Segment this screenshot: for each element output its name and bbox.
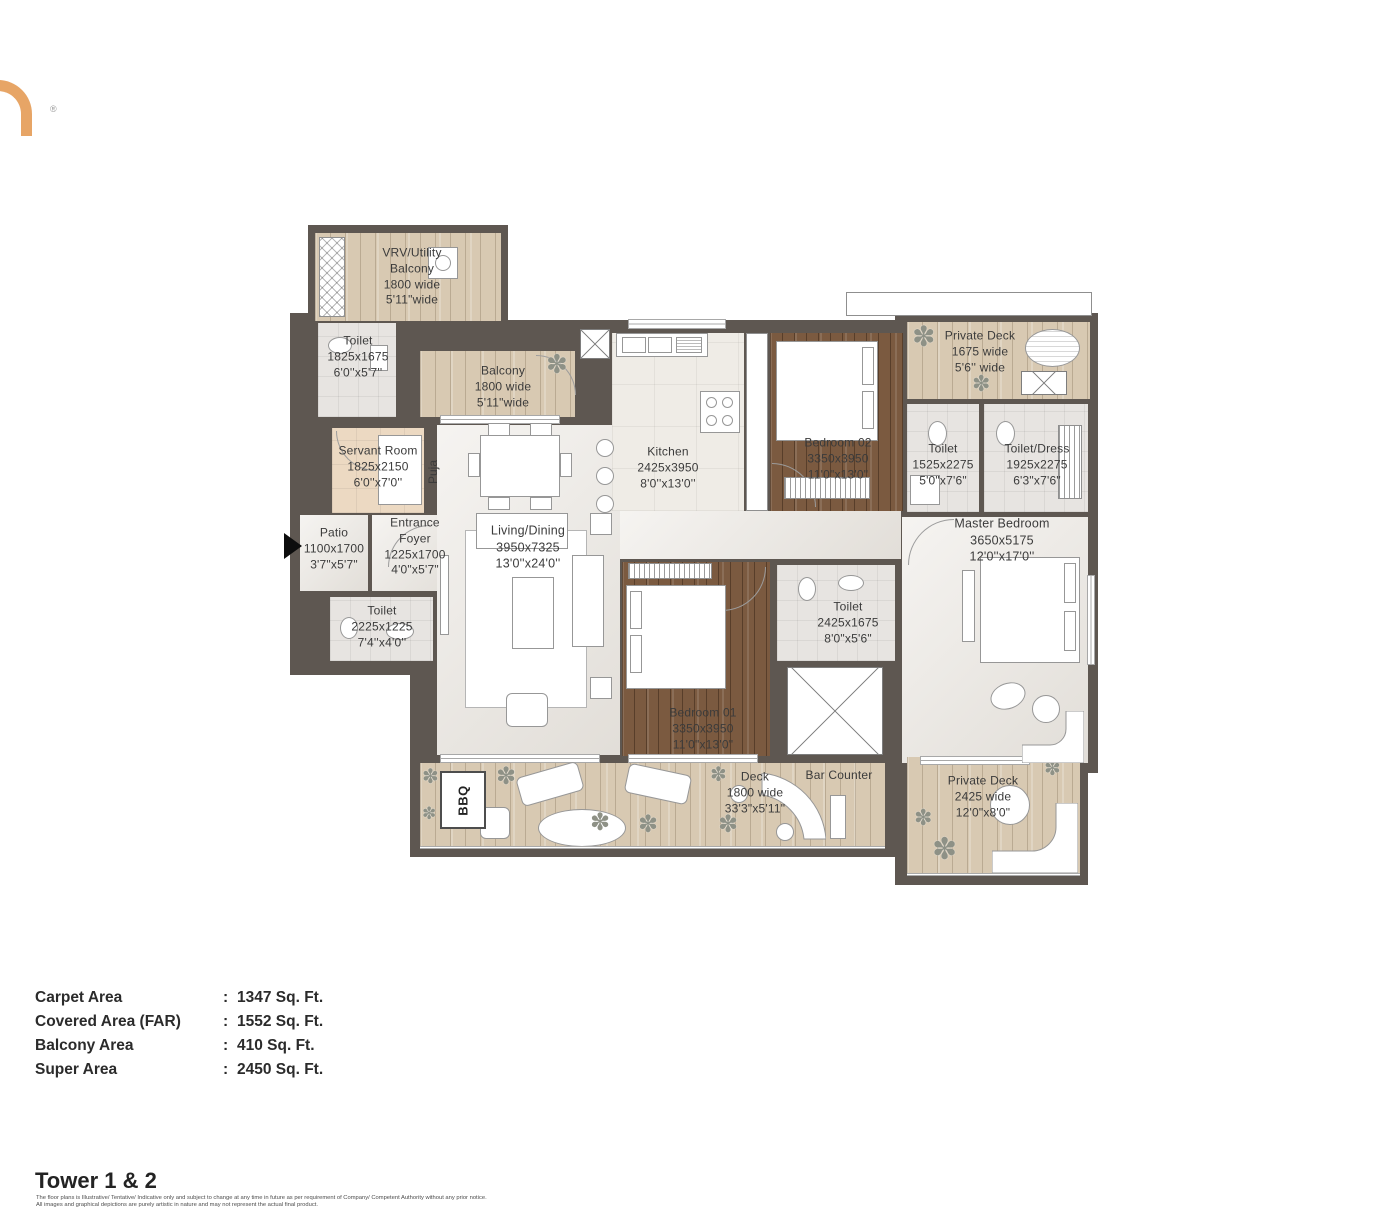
room-label-toilet-4: Toilet 2425x1675 8'0"x5'6" xyxy=(817,599,878,646)
bar-stool xyxy=(596,467,614,485)
room-label-bedroom-01: Bedroom 01 3350x3950 11'0"x13'0" xyxy=(669,705,736,752)
dining-chair xyxy=(560,453,572,477)
hallway xyxy=(620,511,901,559)
dining-chair xyxy=(488,423,510,436)
room-label-deck: Deck 1800 wide 33'3"x5'11" xyxy=(725,769,785,816)
hob-burner xyxy=(722,397,733,408)
area-row-carpet: Carpet Area : 1347 Sq. Ft. xyxy=(35,986,323,1010)
area-row-covered: Covered Area (FAR) : 1552 Sq. Ft. xyxy=(35,1010,323,1034)
room-label-toilet-2: Toilet 2225x1225 7'4''x4'0'' xyxy=(351,603,412,650)
window xyxy=(628,319,726,329)
page: ® xyxy=(0,0,1390,1214)
registered-mark-icon: ® xyxy=(50,104,57,114)
pillow xyxy=(630,635,642,673)
deck-railing xyxy=(907,873,1080,876)
bar-back-counter xyxy=(830,795,846,839)
area-row-balcony: Balcony Area : 410 Sq. Ft. xyxy=(35,1034,323,1058)
side-table xyxy=(590,677,612,699)
plant-icon: ✽ xyxy=(638,813,658,837)
room-label-patio: Patio 1100x1700 3'7"x5'7" xyxy=(304,525,364,572)
kitchen-tall-units xyxy=(746,333,768,511)
window xyxy=(1087,575,1095,665)
plant-icon: ✽ xyxy=(912,323,935,351)
pillow xyxy=(1064,611,1076,651)
slider-door xyxy=(920,756,1030,765)
hob-cooktop xyxy=(700,391,740,433)
room-label-kitchen: Kitchen 2425x3950 8'0''x13'0'' xyxy=(637,444,698,491)
room-label-living-dining: Living/Dining 3950x7325 13'0''x24'0'' xyxy=(491,522,565,572)
plant-icon: ✽ xyxy=(422,805,436,822)
room-label-bedroom-02: Bedroom 02 3350x3950 11'0"x13'0" xyxy=(804,435,871,482)
disclaimer: The floor plans is Illustrative/ Tentati… xyxy=(36,1195,487,1208)
dining-chair xyxy=(488,497,510,510)
bar-stool xyxy=(596,495,614,513)
disclaimer-line-2: All images and graphical depictions are … xyxy=(36,1202,318,1208)
dining-chair xyxy=(530,497,552,510)
room-label-master-bedroom: Master Bedroom 3650x5175 12'0''x17'0'' xyxy=(954,515,1049,565)
entry-arrow-icon xyxy=(284,533,302,559)
pillow xyxy=(862,347,874,385)
dining-table xyxy=(480,435,560,497)
coffee-table xyxy=(512,577,554,649)
curved-corner-sofa xyxy=(1022,711,1084,763)
service-shaft xyxy=(580,329,610,359)
room-label-servant: Servant Room 1825x2150 6'0''x7'0'' xyxy=(338,443,417,490)
stair-lift-shaft xyxy=(787,667,883,755)
plant-icon: ✽ xyxy=(496,765,516,789)
pillow xyxy=(1064,563,1076,603)
wardrobe-hatch xyxy=(628,563,712,579)
service-shaft xyxy=(1021,371,1067,395)
vrv-closet-hatch xyxy=(319,237,345,317)
dining-chair xyxy=(530,423,552,436)
sofa-single xyxy=(572,555,604,647)
room-label-toilet-3: Toilet 1525x2275 5'0"x7'6" xyxy=(912,441,973,488)
plan-title: Tower 1 & 2 xyxy=(35,1168,157,1194)
room-label-toilet-1: Toilet 1825x1675 6'0''x5'7'' xyxy=(327,333,388,380)
plant-icon: ✽ xyxy=(590,811,610,835)
disclaimer-line-1: The floor plans is Illustrative/ Tentati… xyxy=(36,1195,487,1201)
wc-toilet xyxy=(798,577,816,601)
sink-basin xyxy=(648,337,672,353)
hob-burner xyxy=(706,397,717,408)
bedroom-bench xyxy=(962,570,975,642)
bbq-grill: BBQ xyxy=(440,771,486,829)
armchair xyxy=(506,693,548,727)
puja-label: Puja xyxy=(426,460,440,484)
deck-bathtub xyxy=(1025,329,1080,367)
room-label-bar-counter: Bar Counter xyxy=(806,768,873,784)
sink-drainboard xyxy=(676,337,702,353)
room-label-balcony: Balcony 1800 wide 5'11"wide xyxy=(475,363,532,410)
bar-stool xyxy=(596,439,614,457)
washbasin xyxy=(838,575,864,591)
pillow xyxy=(630,591,642,629)
pillow xyxy=(862,391,874,429)
brand-logo-icon xyxy=(0,80,32,136)
room-label-toilet-dress: Toilet/Dress 1925x2275 6'3"x7'6" xyxy=(1004,441,1069,488)
bbq-label: BBQ xyxy=(455,785,470,815)
slider-door xyxy=(628,754,758,763)
area-summary: Carpet Area : 1347 Sq. Ft. Covered Area … xyxy=(35,986,323,1082)
floor-plan: BBQ ✽ ✽ ✽ ✽ ✽ ✽ ✽ ✽ ✽ ✽ ✽ ✽ ✽ xyxy=(290,225,1102,887)
deck-oval-table xyxy=(538,809,626,847)
plant-icon: ✽ xyxy=(546,351,568,377)
plant-icon: ✽ xyxy=(422,767,439,787)
sink-basin xyxy=(622,337,646,353)
planter-ledge xyxy=(846,292,1092,316)
room-label-vrv-utility-balcony: VRV/Utility Balcony 1800 wide 5'11"wide xyxy=(382,245,441,308)
slider-door xyxy=(440,754,600,763)
dining-chair xyxy=(468,453,480,477)
hob-burner xyxy=(722,415,733,426)
plant-icon: ✽ xyxy=(932,835,957,865)
room-label-private-deck-bottom: Private Deck 2425 wide 12'0"x8'0" xyxy=(948,773,1018,820)
plant-icon: ✽ xyxy=(972,373,990,395)
plant-icon: ✽ xyxy=(914,807,932,829)
side-table xyxy=(590,513,612,535)
room-label-entrance-foyer: Entrance Foyer 1225x1700 4'0"x5'7" xyxy=(384,515,445,578)
hob-burner xyxy=(706,415,717,426)
room-label-private-deck-top: Private Deck 1675 wide 5'6'' wide xyxy=(945,328,1015,375)
area-row-super: Super Area : 2450 Sq. Ft. xyxy=(35,1058,323,1082)
